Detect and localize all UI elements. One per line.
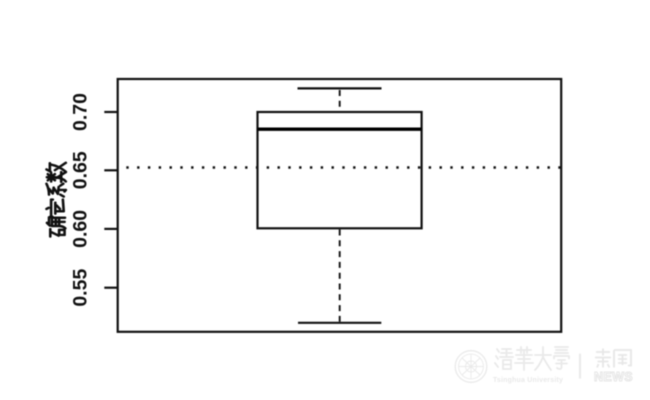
- svg-text:0.60: 0.60: [70, 210, 92, 248]
- svg-text:0.70: 0.70: [70, 93, 92, 131]
- svg-text:NEWS: NEWS: [594, 370, 633, 384]
- svg-text:0.55: 0.55: [70, 269, 92, 307]
- svg-text:0.65: 0.65: [70, 151, 92, 189]
- svg-text:Tsinghua University: Tsinghua University: [493, 377, 563, 384]
